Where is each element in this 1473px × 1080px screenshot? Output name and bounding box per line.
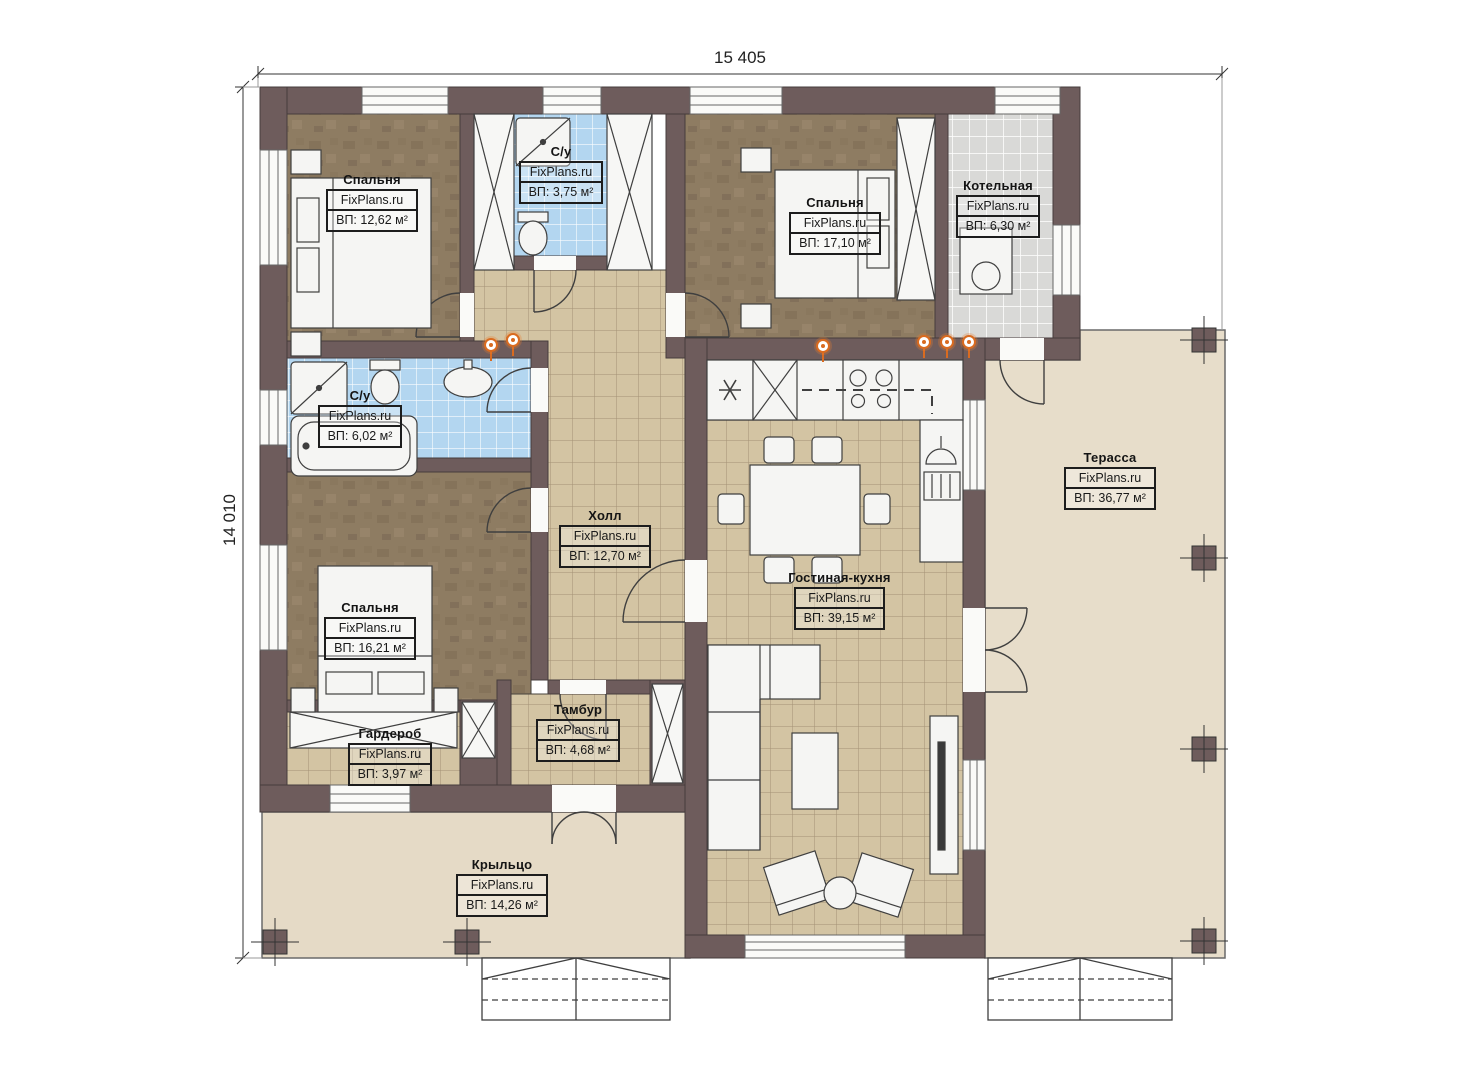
- shower-icon: [516, 118, 570, 166]
- nightstand-icon: [741, 304, 771, 328]
- chair-icon: [764, 557, 794, 583]
- nightstand-icon: [291, 332, 321, 356]
- side-table-icon: [824, 877, 856, 909]
- wardrobe-icon: [462, 702, 495, 758]
- shower-icon: [291, 362, 347, 414]
- bed-icon: [318, 566, 432, 712]
- window: [995, 87, 1060, 114]
- cabinet-icon: [753, 360, 797, 420]
- toilet-icon: [370, 360, 400, 404]
- coffee-table-icon: [792, 733, 838, 809]
- chair-icon: [718, 494, 744, 524]
- window: [362, 87, 448, 114]
- nightstand-icon: [291, 688, 315, 712]
- chair-icon: [812, 437, 842, 463]
- steps: [482, 958, 1172, 1020]
- fridge-icon: [707, 360, 753, 420]
- dimension-line-left: [235, 81, 262, 964]
- tv-stand-icon: [930, 716, 958, 874]
- wardrobe-icon: [290, 712, 457, 748]
- room-floor-vestibule: [511, 694, 650, 785]
- nightstand-icon: [434, 688, 458, 712]
- window: [745, 935, 905, 958]
- wardrobe-icon: [897, 118, 935, 300]
- terrace-floor: [985, 330, 1225, 958]
- window: [330, 785, 410, 812]
- window: [260, 390, 287, 445]
- entrance-steps-icon: [482, 958, 670, 1020]
- dining-table-icon: [750, 465, 860, 555]
- toilet-icon: [518, 212, 548, 255]
- window: [963, 400, 985, 490]
- window: [260, 545, 287, 650]
- entrance-steps-icon: [988, 958, 1172, 1020]
- wardrobe-icon: [474, 114, 514, 270]
- chair-icon: [864, 494, 890, 524]
- floor-plan-drawing: [0, 0, 1473, 1080]
- window: [1053, 225, 1080, 295]
- bed-icon: [775, 170, 895, 298]
- boiler-icon: [960, 228, 1012, 294]
- bathtub-icon: [291, 416, 417, 476]
- window: [690, 87, 782, 114]
- window: [543, 87, 601, 114]
- chair-icon: [764, 437, 794, 463]
- wardrobe-icon: [652, 684, 683, 783]
- nightstand-icon: [291, 150, 321, 174]
- wardrobe-icon: [607, 114, 652, 270]
- chair-icon: [812, 557, 842, 583]
- floor-plan: 15 405 14 010 Спальня FixPlans.ruВП: 12,…: [0, 0, 1473, 1080]
- room-floor-boiler: [948, 114, 1053, 338]
- window: [963, 760, 985, 850]
- bed-icon: [291, 178, 431, 328]
- nightstand-icon: [741, 148, 771, 172]
- window: [260, 150, 287, 265]
- kitchen-sink-icon: [920, 420, 963, 562]
